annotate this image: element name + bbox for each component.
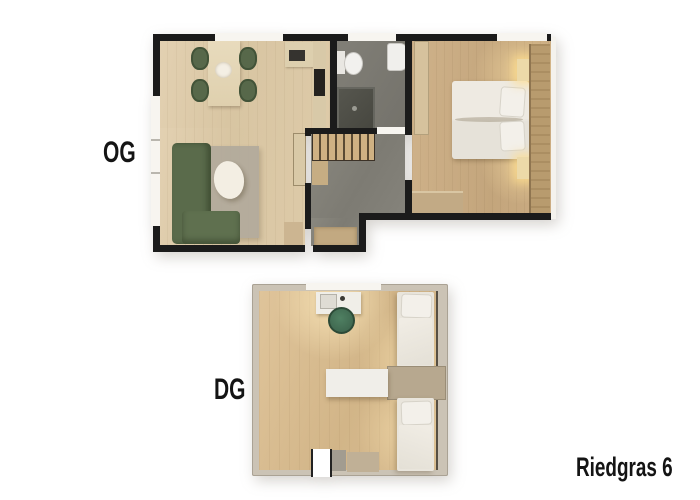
between-beds-cabinet [387, 366, 446, 400]
pillow [401, 293, 433, 318]
dg-label: DG [214, 373, 246, 407]
duvet-top-bed [399, 318, 432, 365]
og-label: OG [103, 136, 136, 170]
stair-landing-tan [347, 452, 379, 472]
duvet-bottom-bed [399, 425, 432, 469]
desk-chair [328, 307, 355, 334]
pillow [401, 400, 433, 425]
roof-window [306, 283, 381, 290]
stair-void [311, 449, 332, 477]
desk-lamp [340, 296, 345, 301]
floor-plan-page: OG DG Riedgras 6 [0, 0, 700, 500]
address-label: Riedgras 6 [576, 452, 673, 483]
laptop [320, 294, 337, 309]
stair-landing-gray [331, 450, 346, 471]
dg-floor-plan [0, 0, 700, 500]
side-table [326, 369, 388, 397]
